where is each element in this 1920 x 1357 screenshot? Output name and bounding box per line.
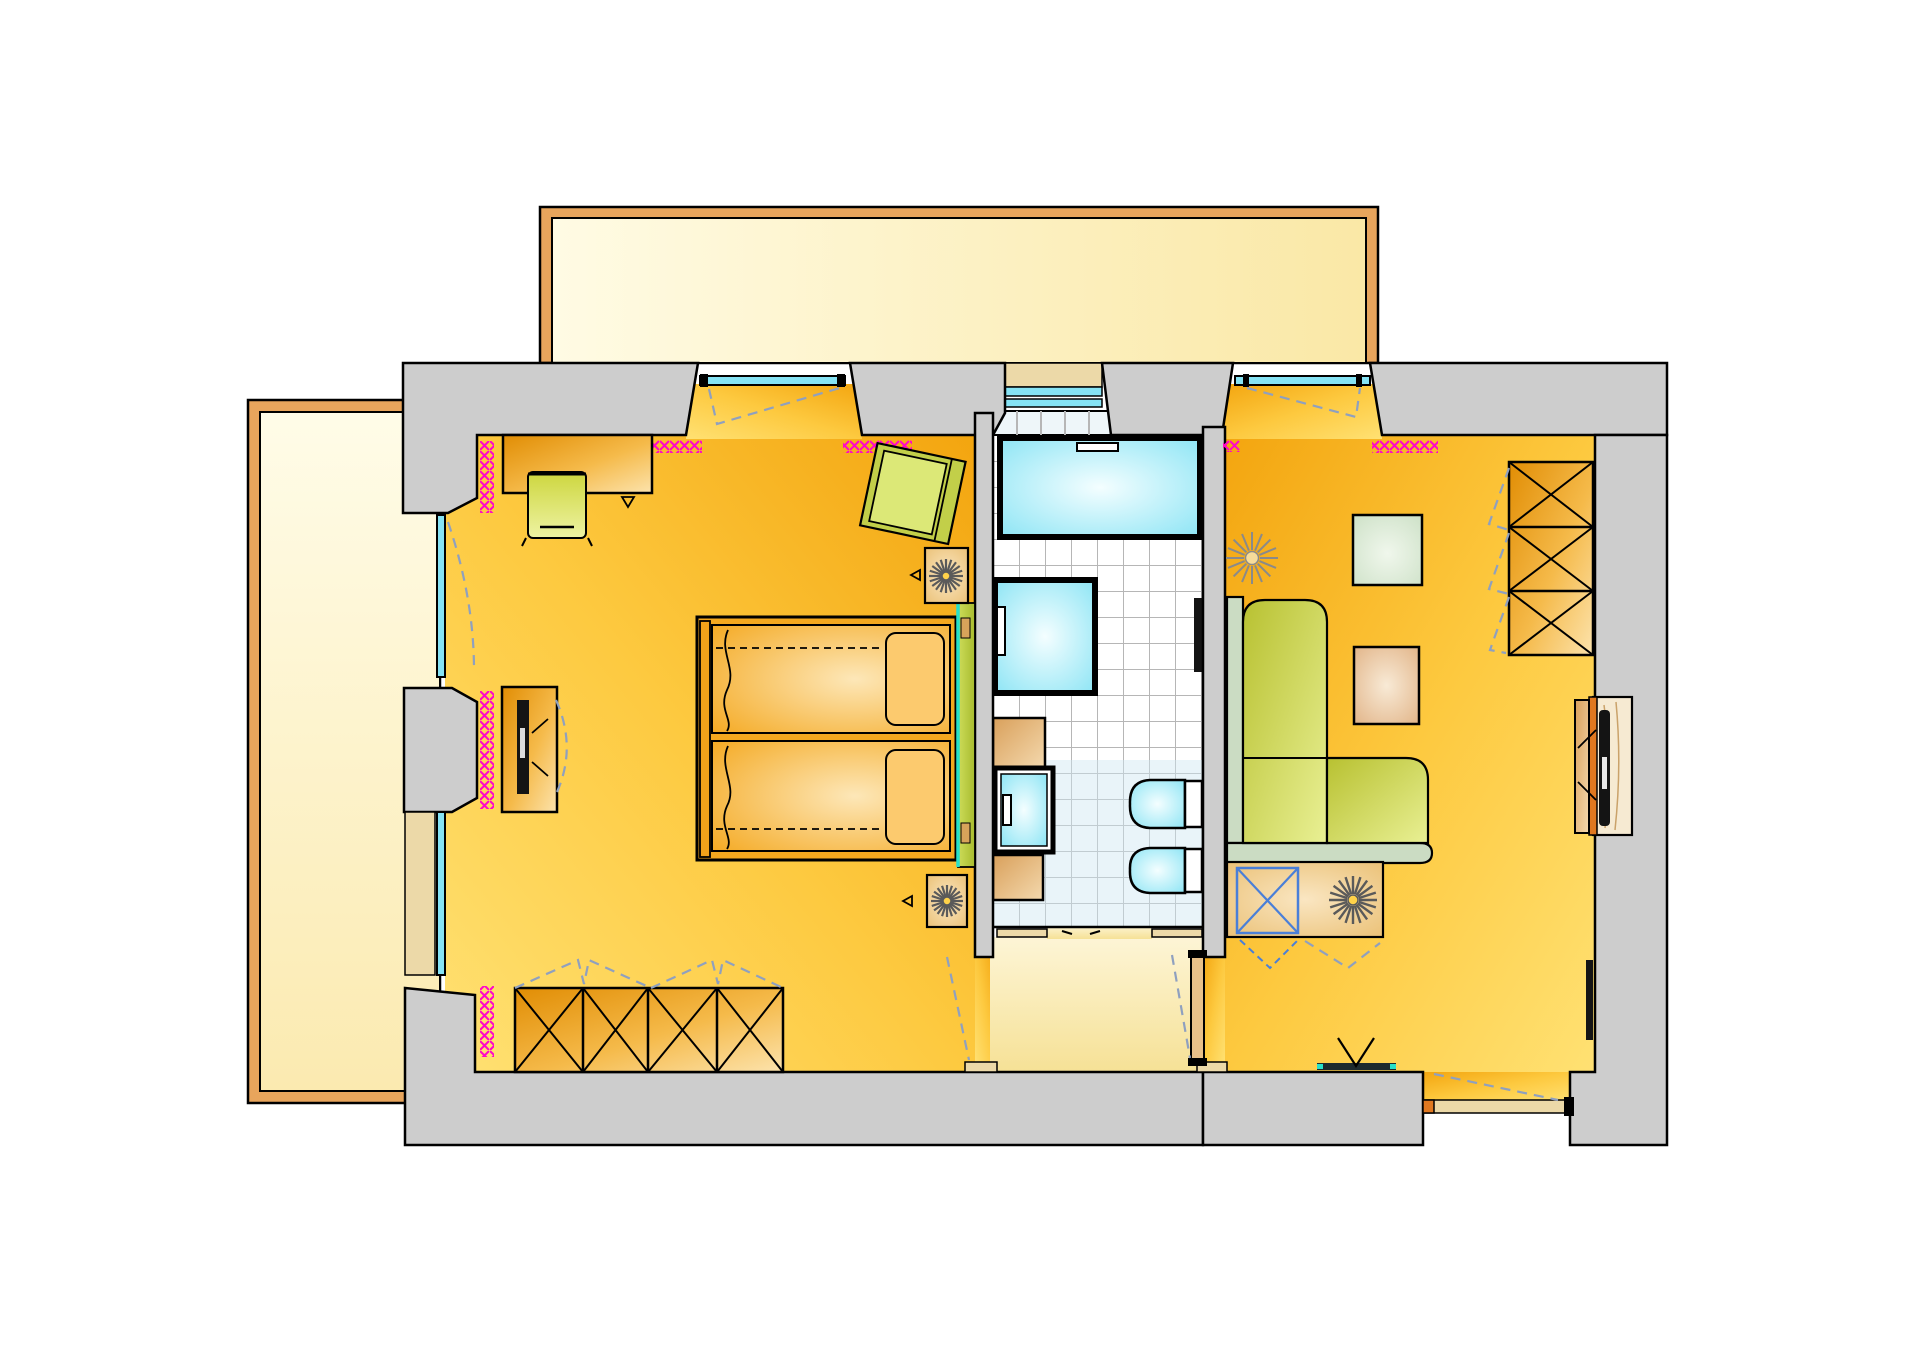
radiator-bedroom-left-2 [480, 691, 494, 809]
bath-threshold-right [1152, 929, 1202, 937]
bedroom-door-jamb-l [700, 374, 708, 387]
living-door-jamb-l [1243, 374, 1249, 387]
bath-counter-upper [993, 718, 1045, 768]
washbasin-tap [1003, 795, 1011, 825]
sofa-seat-horizontal [1327, 758, 1428, 843]
double-bed [697, 617, 956, 860]
sofa-back-bottom [1227, 843, 1432, 863]
tv-niche [1593, 697, 1632, 835]
bedroom-door-recess [686, 384, 862, 439]
living-tv-cabinet [1575, 697, 1632, 835]
wall-top-bath-living [1102, 363, 1233, 435]
radiator-bedroom-top-1 [650, 440, 702, 453]
bathroom-window-pane-2 [1005, 399, 1102, 407]
side-table-tan [1354, 647, 1419, 724]
toilet [1130, 780, 1202, 828]
wall-bathroom-living [1203, 427, 1225, 957]
bidet-rim [1185, 849, 1202, 892]
balcony-top: Upper balcony [540, 207, 1378, 363]
bedroom-door-jamb-r [837, 374, 845, 387]
living-bottom-door-jamb [1564, 1097, 1574, 1116]
sofa-back-left [1227, 597, 1243, 843]
living-bottom-door-threshold [1425, 1100, 1572, 1113]
sofa-seat-vertical [1243, 600, 1327, 843]
bathroom-balcony-sill [1005, 363, 1102, 387]
wall-bedroom-bathroom [975, 413, 993, 957]
bathroom: Bathroom [993, 363, 1203, 937]
bathroom-entry-step [993, 411, 1113, 435]
wall-left-middle-pier [404, 688, 477, 812]
side-table-green [1353, 515, 1422, 585]
pillow-2 [886, 750, 944, 844]
radiator-living-top-1 [1223, 440, 1240, 452]
radiator-bedroom-left-1 [480, 441, 494, 513]
open-door-leaf [1586, 960, 1593, 1040]
shower [995, 580, 1095, 693]
left-window-sill [405, 812, 435, 975]
living-balcony-door-window [1235, 376, 1370, 385]
balcony-top-floor [552, 218, 1366, 363]
washbasin [995, 768, 1053, 852]
towel-bar [1194, 598, 1203, 672]
pillow-1 [886, 633, 944, 725]
bath-threshold-left [997, 929, 1047, 937]
sunburst-light [1226, 532, 1278, 584]
radiator-living-top-2 [1372, 440, 1438, 453]
floor-plan-page: Upper balcony Side balcony Bedroom Livin… [0, 0, 1920, 1357]
desk-chair [522, 472, 592, 546]
living-door-recess [1222, 384, 1382, 439]
floor-plan-drawing: Upper balcony Side balcony Bedroom Livin… [0, 0, 1920, 1357]
bathtub-faucet [1077, 443, 1118, 451]
living-balcony-door-recess [1423, 1072, 1570, 1102]
living-bottom-door-hinge [1423, 1100, 1434, 1113]
living-hall-opening [1203, 955, 1225, 1065]
entrance-hall-floor: Entrance hall [990, 937, 1203, 1072]
hall-jamb-left [965, 1062, 997, 1072]
tv-board [1575, 700, 1589, 833]
hall-living-door [1188, 950, 1207, 1066]
shower-handle [997, 607, 1005, 655]
toilet-cistern [1185, 781, 1202, 827]
radiator-bedroom-left-3 [480, 986, 494, 1057]
bedroom-tv-sideboard [502, 687, 567, 812]
bedroom-side-balcony-door [437, 515, 445, 677]
bedroom-left-window [437, 812, 445, 975]
bath-counter-lower [993, 855, 1043, 900]
bedroom-balcony-door-window [700, 376, 845, 385]
bed-head-bench [958, 603, 975, 867]
bathtub [1000, 438, 1200, 537]
wall-top-right [1370, 363, 1667, 435]
armchair [860, 443, 965, 544]
living-door-jamb-r [1356, 374, 1362, 387]
wall-bottom-middle [1203, 1072, 1423, 1145]
bidet [1130, 848, 1202, 893]
bathroom-window-pane-1 [1005, 387, 1102, 396]
bed-footboard [700, 621, 710, 857]
